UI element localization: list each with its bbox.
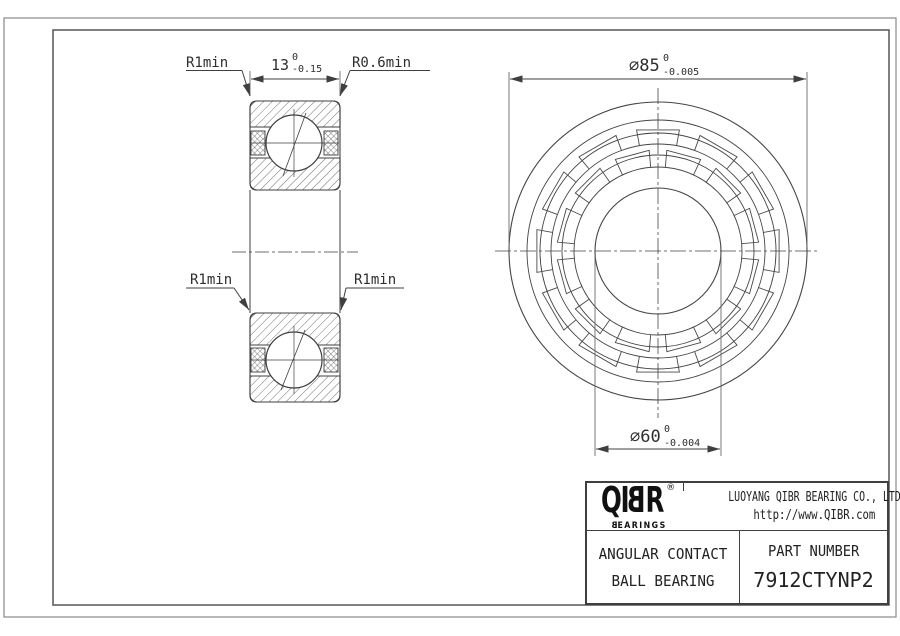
dim-od-tol-upper: 0	[663, 53, 669, 64]
title-block-header-row: QIBR® BEARINGS LUOYANG QIBR BEARING CO.,…	[587, 483, 887, 531]
company-website: http://www.QIBR.com	[754, 508, 876, 523]
dim-width-value: 13	[271, 56, 289, 74]
part-number-label: PART NUMBER	[768, 542, 859, 560]
label-r1min-right: R1min	[354, 272, 396, 288]
title-block-divider-stub	[683, 483, 684, 491]
dim-bore-value: ∅60	[630, 427, 661, 447]
section-view	[232, 101, 358, 402]
registered-mark: ®	[666, 484, 675, 493]
drawing-page: R1min R0.6min R1min R1min 13 0 -0.15 ∅85…	[0, 0, 900, 636]
dim-od-value: ∅85	[629, 56, 660, 76]
dim-width-tol-upper: 0	[292, 52, 298, 63]
title-block: QIBR® BEARINGS LUOYANG QIBR BEARING CO.,…	[585, 481, 889, 605]
dim-bore-tol-lower: -0.004	[664, 438, 700, 449]
product-line2: BALL BEARING	[611, 572, 714, 590]
product-name-cell: ANGULAR CONTACT BALL BEARING	[587, 531, 740, 603]
section-bottom-cut	[250, 313, 340, 402]
qibr-logo: QIBR	[601, 483, 663, 519]
dim-od-tol-lower: -0.005	[663, 67, 699, 78]
product-line1: ANGULAR CONTACT	[599, 545, 728, 563]
part-number-value: 7912CTYNP2	[753, 568, 873, 592]
label-r06min: R0.6min	[352, 55, 411, 71]
section-top-cut	[250, 101, 340, 190]
company-info: LUOYANG QIBR BEARING CO., LTD http://www…	[701, 483, 900, 530]
company-name: LUOYANG QIBR BEARING CO., LTD	[728, 490, 900, 505]
title-block-detail-row: ANGULAR CONTACT BALL BEARING PART NUMBER…	[587, 531, 887, 603]
logo-subtitle: BEARINGS	[610, 521, 694, 531]
front-view	[495, 88, 820, 418]
brand-logo: QIBR® BEARINGS	[587, 483, 701, 530]
dim-width-tol-lower: -0.15	[292, 64, 322, 75]
dim-bore-tol-upper: 0	[664, 424, 670, 435]
part-number-cell: PART NUMBER 7912CTYNP2	[740, 531, 887, 603]
label-r1min-top: R1min	[186, 55, 228, 71]
label-r1min-left: R1min	[190, 272, 232, 288]
